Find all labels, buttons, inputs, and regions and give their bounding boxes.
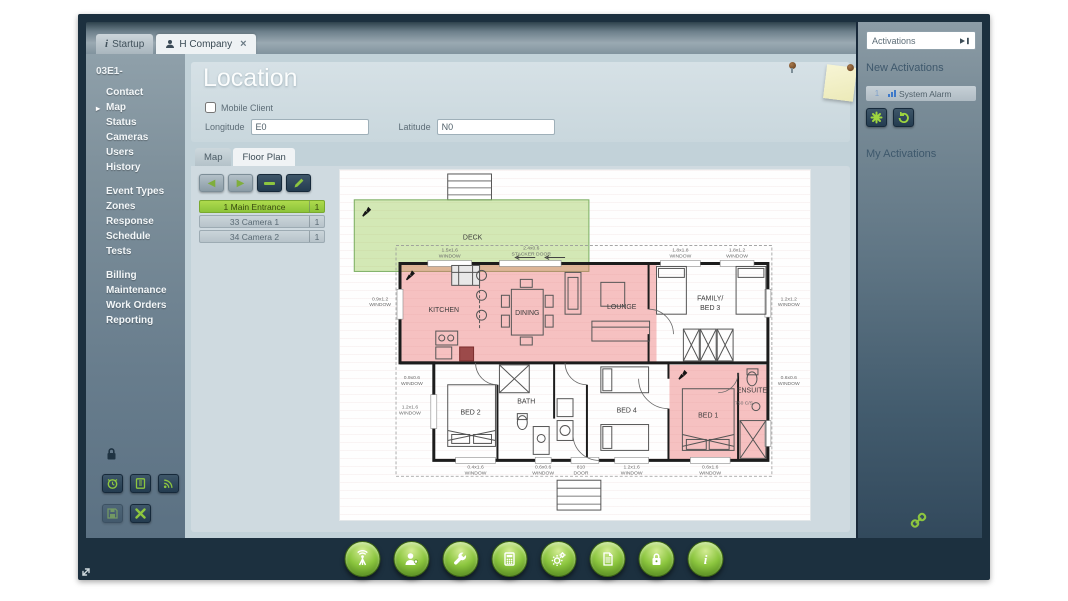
refresh-button[interactable]: [893, 108, 914, 127]
svg-text:0.9x0.6: 0.9x0.6: [404, 375, 421, 381]
svg-text:1.8x1.8: 1.8x1.8: [672, 248, 689, 254]
sidebar-item-tests[interactable]: Tests: [86, 244, 185, 259]
dock-calculator-button[interactable]: [492, 541, 528, 577]
sidebar-item-event-types[interactable]: Event Types: [86, 184, 185, 199]
location-panel: Location Mobile Client Longitude Latitud…: [191, 62, 850, 142]
svg-text:1.2x1.6: 1.2x1.6: [624, 464, 641, 470]
room-label-dining: DINING: [515, 310, 539, 317]
tab-h-company[interactable]: H Company ×: [156, 34, 255, 54]
stairs-top: [448, 174, 492, 200]
room-label-bath: BATH: [517, 399, 535, 406]
my-activations-title: My Activations: [866, 148, 936, 160]
longitude-input[interactable]: [251, 119, 369, 135]
save-button[interactable]: [102, 504, 123, 523]
svg-text:WINDOW: WINDOW: [439, 254, 461, 260]
bath-fixtures: [499, 365, 549, 454]
room-label-bed1: BED 1: [698, 413, 718, 420]
laundry-fixtures: [557, 399, 573, 441]
user-icon: [403, 550, 421, 568]
svg-text:WINDOW: WINDOW: [778, 381, 800, 387]
next-zone-button[interactable]: ▶: [228, 174, 253, 192]
lock-icon: [104, 446, 119, 461]
dock-settings-button[interactable]: [541, 541, 577, 577]
prev-zone-button[interactable]: ◀: [199, 174, 224, 192]
cancel-button[interactable]: [130, 504, 151, 523]
svg-text:DOOR: DOOR: [574, 470, 589, 476]
svg-text:WINDOW: WINDOW: [621, 470, 643, 476]
svg-text:WINDOW: WINDOW: [778, 302, 800, 308]
directory-button[interactable]: [130, 474, 151, 493]
svg-text:WINDOW: WINDOW: [369, 302, 391, 308]
pushpin-icon: [789, 62, 796, 69]
minus-icon: [264, 182, 275, 185]
wireless-button[interactable]: [158, 474, 179, 493]
svg-text:WINDOW: WINDOW: [726, 254, 748, 260]
edit-zone-button[interactable]: [286, 174, 311, 192]
dock: i: [345, 541, 724, 577]
app-window: i Startup H Company × 03E1- Contact Map …: [78, 14, 990, 580]
sidebar-item-users[interactable]: Users: [86, 145, 185, 160]
svg-text:0.6x0.6: 0.6x0.6: [535, 464, 552, 470]
info-icon: i: [105, 38, 108, 50]
sidebar-item-response[interactable]: Response: [86, 214, 185, 229]
sidebar: 03E1- Contact Map Status Cameras Users H…: [86, 54, 185, 538]
latitude-input[interactable]: [437, 119, 555, 135]
zone-toolbar: ◀ ▶: [199, 174, 311, 192]
latitude-label: Latitude: [399, 122, 431, 132]
lock-icon: [648, 550, 666, 568]
page-title: Location: [203, 64, 298, 93]
svg-text:1.5x1.6: 1.5x1.6: [442, 248, 459, 254]
document-icon: [599, 550, 617, 568]
alarm-count: 1: [866, 89, 888, 98]
svg-text:0.4x1.6: 0.4x1.6: [467, 464, 484, 470]
svg-text:0.9x1.2: 0.9x1.2: [372, 296, 389, 302]
dock-reports-button[interactable]: [590, 541, 626, 577]
remove-zone-button[interactable]: [257, 174, 282, 192]
mobile-client-label: Mobile Client: [221, 103, 273, 113]
wrench-icon: [452, 550, 470, 568]
arrow-left-icon: ◀: [208, 178, 216, 189]
room-label-kitchen: KITCHEN: [428, 307, 459, 314]
person-icon: [165, 39, 175, 49]
floor-plan-canvas[interactable]: DECK KITCHEN DINING LOUNGE FAMILY/ BED 3…: [339, 169, 811, 521]
zone-row-main-entrance[interactable]: 1 Main Entrance 1: [199, 200, 325, 213]
close-tab-icon[interactable]: ×: [240, 38, 246, 50]
svg-text:1.8x1.2: 1.8x1.2: [729, 248, 746, 254]
svg-text:WINDOW: WINDOW: [399, 411, 421, 417]
info-icon: i: [697, 550, 715, 568]
sidebar-item-maintenance[interactable]: Maintenance: [86, 283, 185, 298]
sticky-note[interactable]: [823, 64, 857, 101]
longitude-label: Longitude: [205, 122, 245, 132]
dock-info-button[interactable]: i: [688, 541, 724, 577]
svg-text:WINDOW: WINDOW: [465, 470, 487, 476]
room-label-family: FAMILY/: [697, 295, 723, 302]
svg-text:i: i: [704, 552, 708, 567]
sidebar-item-schedule[interactable]: Schedule: [86, 229, 185, 244]
svg-text:1.2x1.6: 1.2x1.6: [402, 405, 419, 411]
activations-panel: Activations New Activations 1 System Ala…: [856, 22, 982, 538]
sidebar-item-work-orders[interactable]: Work Orders: [86, 298, 185, 313]
go-arrow-icon: [959, 36, 970, 46]
undo-icon: [897, 111, 910, 124]
label-cs: 750 C/S: [735, 401, 754, 407]
svg-text:WINDOW: WINDOW: [401, 381, 423, 387]
resize-handle[interactable]: [79, 565, 93, 579]
svg-text:2.4x0.6: 2.4x0.6: [523, 246, 540, 252]
system-alarm-item[interactable]: 1 System Alarm: [866, 86, 976, 101]
sidebar-item-zones[interactable]: Zones: [86, 199, 185, 214]
sidebar-item-status[interactable]: Status: [86, 115, 185, 130]
stairs-bottom: [557, 480, 601, 510]
tab-map[interactable]: Map: [195, 148, 231, 166]
room-label-bed2: BED 2: [461, 410, 481, 417]
dock-users-button[interactable]: [394, 541, 430, 577]
zone-list: 1 Main Entrance 1 33 Camera 1 1 34 Camer…: [199, 200, 325, 245]
svg-text:0.6x0.6: 0.6x0.6: [781, 375, 798, 381]
gears-icon: [550, 550, 568, 568]
dock-security-button[interactable]: [639, 541, 675, 577]
sidebar-item-map[interactable]: Map: [86, 100, 185, 115]
arrow-right-icon: ▶: [237, 178, 245, 189]
bar-chart-icon: [888, 90, 896, 97]
pushpin-icon: [847, 64, 855, 72]
svg-text:WINDOW: WINDOW: [532, 470, 554, 476]
link-icon[interactable]: [910, 512, 927, 529]
dock-wireless-button[interactable]: [345, 541, 381, 577]
svg-text:1.2x1.2: 1.2x1.2: [781, 296, 798, 302]
zone-row-camera-2[interactable]: 34 Camera 2 1: [199, 230, 325, 243]
pencil-icon: [293, 177, 305, 189]
svg-text:WINDOW: WINDOW: [699, 470, 721, 476]
zone-row-camera-1[interactable]: 33 Camera 1 1: [199, 215, 325, 228]
antenna-icon: [354, 550, 372, 568]
room-label-lounge: LOUNGE: [607, 304, 637, 311]
dock-tools-button[interactable]: [443, 541, 479, 577]
alarm-label: System Alarm: [899, 89, 951, 99]
starburst-icon: [870, 111, 883, 124]
svg-text:0.6x1.6: 0.6x1.6: [702, 464, 719, 470]
sidebar-item-reporting[interactable]: Reporting: [86, 313, 185, 328]
new-activation-button[interactable]: [866, 108, 887, 127]
sidebar-item-history[interactable]: History: [86, 160, 185, 175]
floor-plan-panel: ◀ ▶ 1 Main Entrance 1 33 Camera 1 1 34 C…: [191, 166, 850, 532]
mobile-client-checkbox[interactable]: [205, 102, 216, 113]
tab-floor-plan[interactable]: Floor Plan: [233, 148, 294, 166]
room-label-deck: DECK: [463, 235, 483, 242]
svg-text:810: 810: [577, 464, 586, 470]
alarm-clock-button[interactable]: [102, 474, 123, 493]
account-id: 03E1-: [96, 66, 185, 77]
room-label-bed4: BED 4: [617, 408, 637, 415]
tab-strip: i Startup H Company ×: [96, 34, 256, 54]
calculator-icon: [501, 550, 519, 568]
main-content: Location Mobile Client Longitude Latitud…: [185, 54, 856, 538]
svg-text:WINDOW: WINDOW: [669, 254, 691, 260]
sidebar-item-billing[interactable]: Billing: [86, 268, 185, 283]
header-bar: i Startup H Company ×: [86, 22, 982, 54]
svg-text:STACKER DOOR: STACKER DOOR: [512, 252, 552, 258]
new-activations-title: New Activations: [866, 62, 944, 74]
room-label-bed3: BED 3: [700, 305, 720, 312]
room-label-ensuite: ENSUITE: [737, 388, 767, 395]
tab-h-company-label: H Company: [179, 39, 232, 50]
tab-startup[interactable]: i Startup: [96, 34, 153, 54]
tab-startup-label: Startup: [112, 39, 144, 50]
sidebar-item-cameras[interactable]: Cameras: [86, 130, 185, 145]
sidebar-item-contact[interactable]: Contact: [86, 85, 185, 100]
activations-dropdown[interactable]: Activations: [866, 31, 976, 50]
wardrobes: [683, 329, 733, 361]
